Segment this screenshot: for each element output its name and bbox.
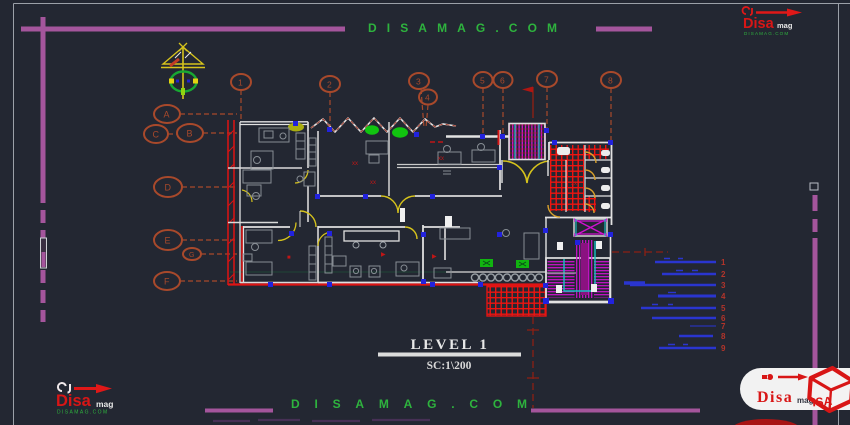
svg-text:F: F (164, 277, 170, 287)
svg-text:DISAMAG.COM: DISAMAG.COM (744, 31, 789, 36)
svg-text:9: 9 (721, 344, 726, 353)
svg-text:xx: xx (370, 180, 376, 186)
svg-text:ISA: ISA (812, 394, 833, 410)
svg-text:1: 1 (721, 258, 726, 267)
svg-text:3: 3 (721, 281, 726, 290)
svg-text:2: 2 (327, 80, 332, 90)
svg-text:3: 3 (416, 77, 421, 87)
svg-text:xx: xx (438, 156, 444, 162)
svg-text:8: 8 (721, 332, 726, 341)
svg-text:E: E (165, 236, 171, 246)
svg-text:xx: xx (571, 181, 577, 187)
svg-text:G: G (189, 252, 194, 259)
svg-text:B: B (187, 129, 193, 139)
svg-text:▶: ▶ (381, 252, 386, 258)
svg-text:4: 4 (721, 292, 726, 301)
svg-text:5: 5 (480, 76, 485, 86)
svg-text:DISAMAG.COM: DISAMAG.COM (57, 410, 109, 416)
svg-text:mag: mag (96, 399, 113, 409)
svg-text:C: C (153, 130, 160, 140)
svg-text:DISAMAG.COM: DISAMAG.COM (291, 397, 542, 411)
svg-text:4: 4 (425, 93, 430, 103)
svg-text:5: 5 (721, 304, 726, 313)
svg-text:■: ■ (287, 255, 291, 261)
svg-text:SC:1\200: SC:1\200 (427, 360, 472, 372)
svg-text:D: D (165, 183, 172, 193)
svg-text:Disa: Disa (743, 16, 775, 32)
svg-text:LEVEL 1: LEVEL 1 (411, 337, 490, 353)
svg-text:2: 2 (721, 270, 726, 279)
svg-text:7: 7 (721, 322, 726, 331)
svg-text:1: 1 (238, 78, 243, 88)
svg-text:mag: mag (777, 21, 793, 30)
svg-text:▶: ▶ (432, 254, 437, 260)
svg-text:7: 7 (544, 75, 549, 85)
svg-text:xx: xx (352, 161, 358, 167)
svg-text:DISAMAG.COM: DISAMAG.COM (368, 21, 567, 35)
svg-text:6: 6 (500, 76, 505, 86)
svg-text:Disa: Disa (757, 389, 793, 406)
svg-text:8: 8 (608, 76, 613, 86)
svg-text:A: A (164, 110, 170, 120)
svg-text:Disa: Disa (56, 392, 92, 410)
